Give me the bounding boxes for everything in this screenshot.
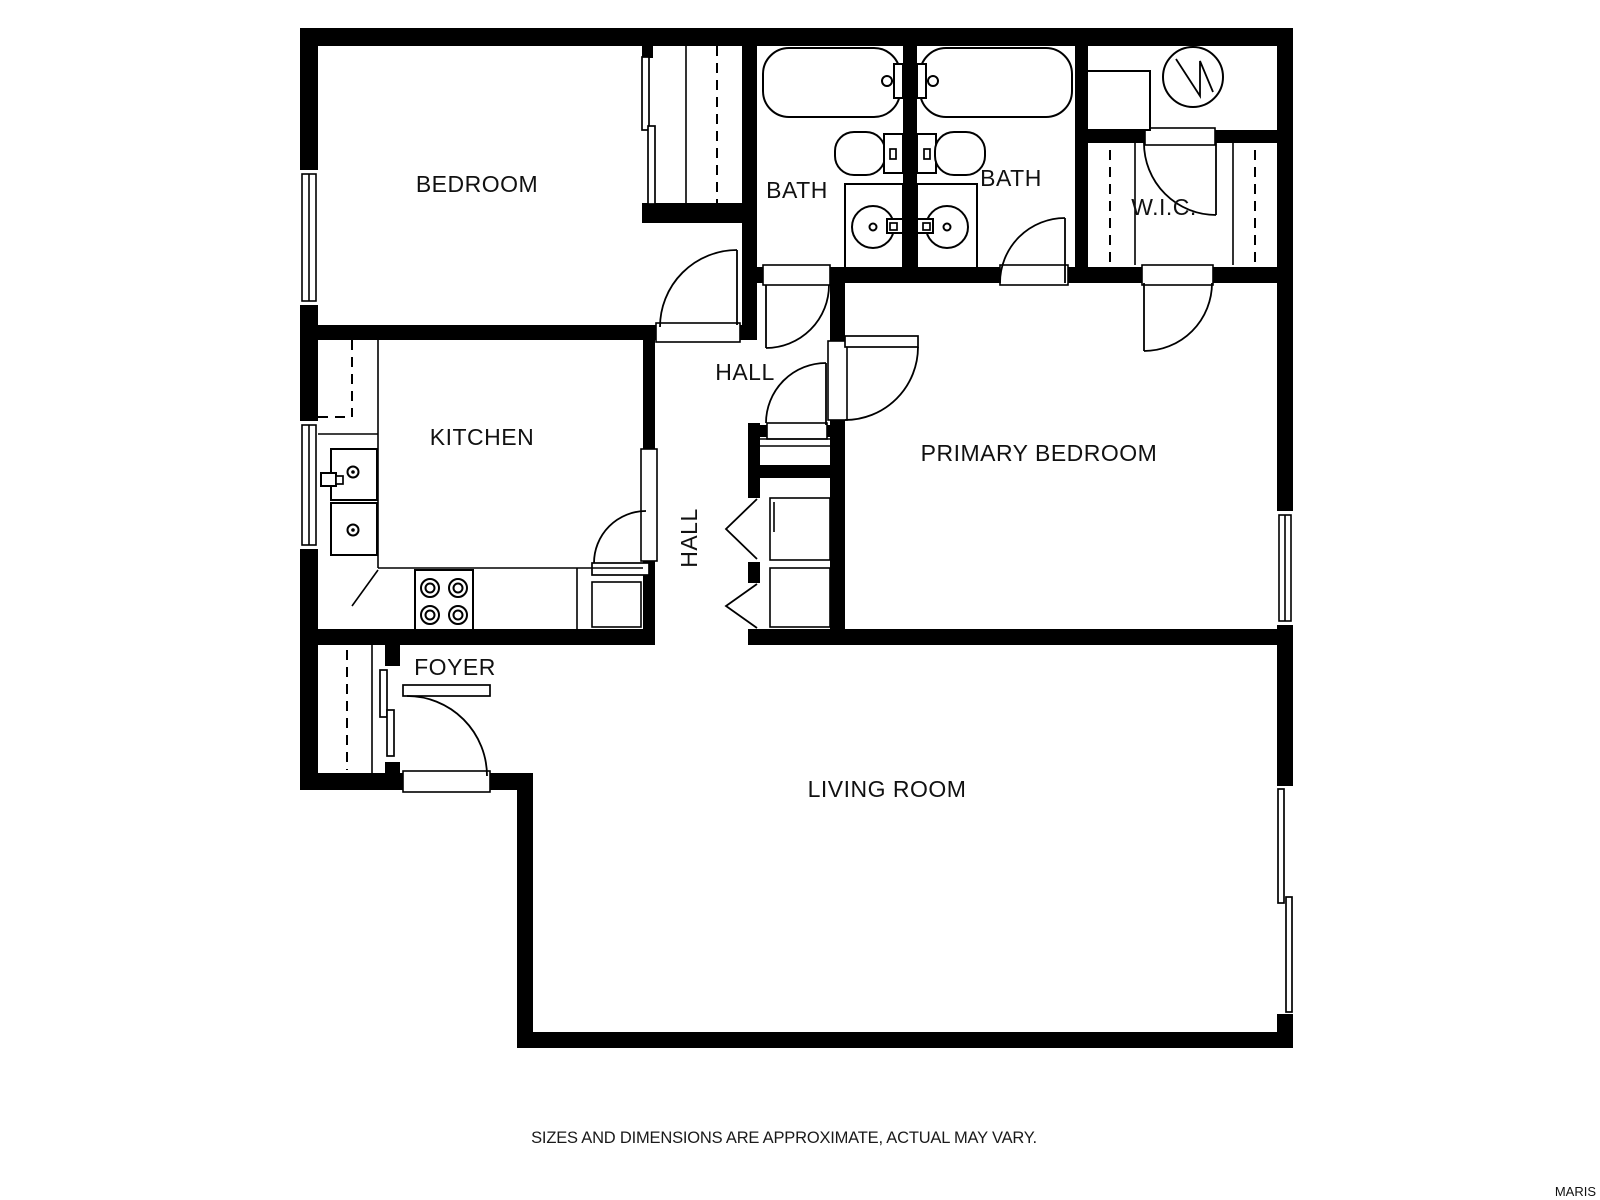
bedroom-door — [660, 250, 737, 327]
kitchen-fixtures — [318, 340, 643, 630]
slider-panel — [1278, 789, 1284, 903]
wic-primary-door — [1144, 283, 1212, 351]
floor-plan-page: BEDROOM BATH BATH W.I.C. KITCHEN HALL HA… — [0, 0, 1600, 1200]
toilet-flush-button — [924, 149, 930, 159]
sink-faucet-handle — [336, 476, 343, 484]
slider-panel — [642, 57, 649, 130]
burner-center — [426, 611, 435, 620]
sink-drain-icon — [870, 224, 877, 231]
linen-closet-door — [766, 363, 826, 425]
tub-spout-icon — [882, 76, 892, 86]
bedroom-closet-sliding-doors — [642, 57, 655, 204]
wall-hall-closet-middle — [748, 465, 845, 478]
threshold-bath1-door — [763, 265, 830, 285]
slider-panel — [648, 126, 655, 204]
tub-spout-icon — [928, 76, 938, 86]
utility-platform — [1087, 71, 1150, 130]
burner-center — [454, 584, 463, 593]
room-label-bath-1: BATH — [766, 177, 828, 203]
slider-panel — [380, 670, 387, 717]
threshold-wic-door — [1145, 128, 1215, 145]
bath2-fixtures — [917, 48, 1072, 268]
tub-faucet-plate — [894, 64, 903, 98]
watermark-text: MARIS — [1555, 1184, 1597, 1199]
threshold-primary-door — [828, 341, 847, 420]
floor-plan: BEDROOM BATH BATH W.I.C. KITCHEN HALL HA… — [0, 0, 1600, 1200]
sink-drain-dot — [351, 470, 355, 474]
bedroom-closet-interior — [686, 46, 717, 203]
wall-bedroom-closet-bottom — [642, 203, 757, 223]
room-label-hall-lower: HALL — [676, 508, 702, 568]
bathtub-icon — [920, 48, 1072, 117]
door-leaf — [845, 336, 918, 347]
entry-door — [403, 685, 490, 776]
room-label-living-room: LIVING ROOM — [808, 776, 967, 802]
wall-baths-shared — [903, 46, 917, 267]
disclaimer-text: SIZES AND DIMENSIONS ARE APPROXIMATE, AC… — [531, 1129, 1037, 1147]
door-swing-arc — [766, 285, 829, 348]
foyer-closet-interior — [347, 645, 372, 773]
wall-top-exterior — [300, 28, 1293, 46]
door-leaf — [403, 685, 490, 696]
sink-faucet-handle — [890, 223, 897, 230]
threshold-bath2-door — [1000, 265, 1068, 285]
room-label-kitchen: KITCHEN — [430, 424, 534, 450]
bath1-fixtures — [763, 48, 903, 268]
room-label-foyer: FOYER — [414, 654, 496, 680]
slider-panel — [387, 710, 394, 756]
sink-drain-dot — [351, 528, 355, 532]
slider-panel — [1286, 897, 1292, 1012]
burner-center — [454, 611, 463, 620]
wall-bottom-exterior — [517, 1032, 1293, 1048]
threshold-entry-door — [403, 771, 490, 792]
doors — [380, 57, 1216, 776]
threshold-bedroom-door — [656, 323, 740, 342]
room-label-primary-bedroom: PRIMARY BEDROOM — [921, 440, 1158, 466]
threshold-kitchen-door — [641, 449, 657, 561]
closet-shelf-box — [770, 568, 830, 627]
water-heater-icon — [1163, 47, 1223, 107]
sink-drain-icon — [944, 224, 951, 231]
wall-left-exterior — [300, 46, 318, 790]
gap-patio-slider — [1273, 786, 1297, 1014]
utility-closet-fixtures — [1087, 47, 1223, 130]
door-swing-arc — [660, 250, 737, 327]
bath1-door — [766, 285, 829, 348]
primary-bedroom-door — [845, 336, 918, 420]
door-swing-arc — [845, 347, 918, 420]
wall-living-room-top — [748, 629, 1293, 645]
room-label-bath-2: BATH — [980, 165, 1042, 191]
room-label-bedroom: BEDROOM — [416, 171, 538, 197]
room-label-wic: W.I.C. — [1131, 194, 1197, 220]
tub-faucet-plate — [917, 64, 926, 98]
bathtub-icon — [763, 48, 900, 117]
toilet-bowl-icon — [835, 132, 885, 175]
door-swing-arc — [766, 363, 826, 423]
threshold-linen-closet-door — [767, 423, 827, 439]
door-swing-arc — [1144, 283, 1212, 351]
wall-primary-left — [830, 283, 845, 643]
wall-bath1-left — [742, 46, 757, 340]
dishwasher-icon — [592, 582, 641, 627]
counter-corner-line — [352, 570, 378, 606]
closet-shelf-box — [770, 498, 830, 560]
sink-faucet-icon — [321, 473, 336, 486]
door-swing-arc — [407, 696, 487, 776]
wall-lower-left-exterior — [517, 790, 533, 1048]
toilet-flush-button — [890, 149, 896, 159]
toilet-bowl-icon — [935, 132, 985, 175]
door-leaf — [592, 563, 649, 575]
room-label-hall-upper: HALL — [715, 359, 775, 385]
sink-faucet-handle — [923, 223, 930, 230]
burner-center — [426, 584, 435, 593]
wall-bedroom-closet-stub — [642, 45, 653, 58]
wall-kitchen-bottom — [300, 629, 655, 645]
door-swing-arc — [594, 511, 646, 563]
threshold-wic-primary-door — [1142, 265, 1213, 285]
